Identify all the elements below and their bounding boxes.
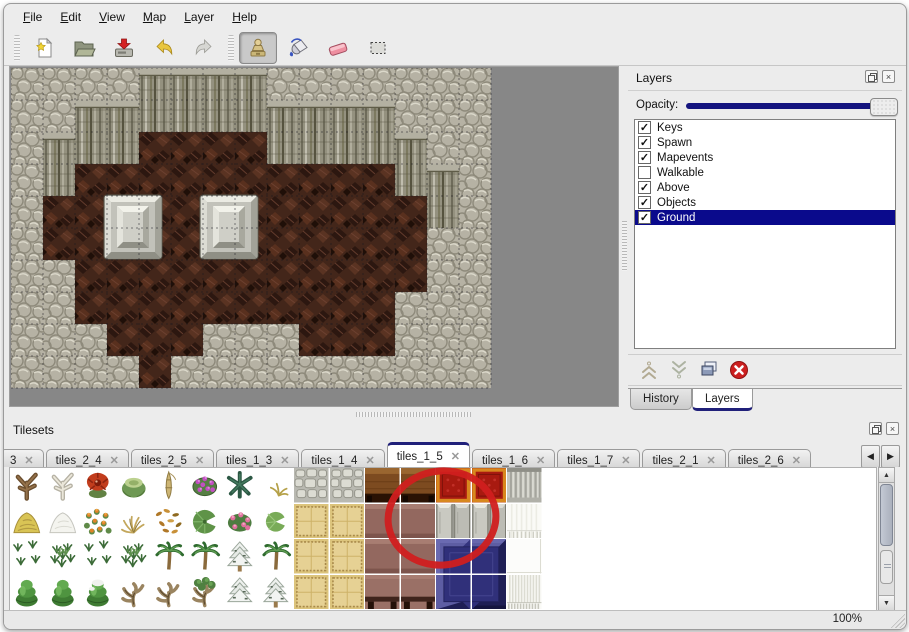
tile-dry-grass[interactable] [117,504,152,539]
scroll-down-button[interactable]: ▼ [879,595,894,610]
tab-close-icon[interactable]: ✕ [195,454,204,467]
tile-table-brown[interactable] [401,575,436,610]
menu-map[interactable]: Map [134,7,175,27]
tileset-tab-label: tiles_2_6 [738,455,784,467]
tile-stump[interactable] [117,468,152,503]
layer-row-ground[interactable]: ✓Ground [635,210,895,225]
tile-blue-bl[interactable] [436,575,471,610]
layer-name: Mapevents [657,152,713,164]
tileset-tab-label: tiles_2_5 [141,455,187,467]
float-icon [872,425,879,432]
tile-conifer[interactable] [10,575,45,610]
tileset-tab-tiles_1_3[interactable]: tiles_1_3✕ [216,449,299,467]
save-icon [112,36,136,60]
delete-layer-button[interactable] [726,357,752,383]
layer-name: Keys [657,122,683,134]
duplicate-layer-button[interactable] [696,357,722,383]
tile-twisted-tree[interactable] [117,575,152,610]
fill-bucket-icon [286,36,310,60]
tile-curtain-white[interactable] [507,504,542,539]
menu-view[interactable]: View [90,7,134,27]
toolbar [4,30,906,66]
tile-tan-carpet[interactable] [330,504,365,539]
tab-close-icon[interactable]: ✕ [792,454,801,467]
new-file-icon [32,36,56,60]
tileset-tab-label: tiles_1_4 [311,455,357,467]
layers-float-button[interactable] [865,70,878,83]
layer-buttons [628,354,902,386]
tab-close-icon[interactable]: ✕ [110,454,119,467]
tileset-tab-tiles_2_6[interactable]: tiles_2_6✕ [728,449,811,467]
tab-close-icon[interactable]: ✕ [365,454,374,467]
menu-layer[interactable]: Layer [175,7,223,27]
tile-cobble[interactable] [294,468,329,503]
layer-name: Objects [657,197,696,209]
raise-layer-button[interactable] [636,357,662,383]
tile-weed-clump[interactable] [46,539,81,574]
tile-bamboo[interactable] [152,468,187,503]
tab-close-icon[interactable]: ✕ [280,454,289,467]
tile-tan-carpet[interactable] [294,575,329,610]
tileset-tab-label: tiles_1_5 [397,451,443,463]
layer-visibility-checkbox[interactable]: ✓ [638,181,651,194]
tileset-tab-tiles_1_5[interactable]: tiles_1_5✕ [387,442,470,467]
menu-edit[interactable]: Edit [51,7,90,27]
layer-row-above[interactable]: ✓Above [635,180,895,195]
float-icon [868,73,875,80]
layer-visibility-checkbox[interactable] [638,166,651,179]
layer-row-mapevents[interactable]: ✓Mapevents [635,150,895,165]
layer-name: Spawn [657,137,692,149]
tile-red-flower[interactable] [81,468,116,503]
stamp-icon [246,36,270,60]
layer-visibility-checkbox[interactable]: ✓ [638,196,651,209]
lower-layer-icon [668,359,690,381]
tile-purple-flowers[interactable] [188,468,223,503]
toolbar-grip[interactable] [228,35,234,61]
tilesets-dock-title: Tilesets [13,423,54,437]
tileset-scrollbar[interactable]: ▲ ▼ [878,467,895,611]
duplicate-layer-icon [698,359,720,381]
tileset-tab-tiles_1_4[interactable]: tiles_1_4✕ [301,449,384,467]
layer-name: Ground [657,212,695,224]
tile-curtain-fringe[interactable] [507,575,542,610]
opacity-slider-handle[interactable] [870,98,898,116]
select-tool-button[interactable] [359,32,397,64]
tile-red-carpet[interactable] [436,468,471,503]
tile-palm[interactable] [188,539,223,574]
tile-mauve[interactable] [365,504,400,539]
delete-layer-icon [728,359,750,381]
tileset-tab-label: tiles_1_7 [567,455,613,467]
tile-tan-carpet[interactable] [330,539,365,574]
tile-lily-pad[interactable] [188,504,223,539]
new-map-button[interactable] [25,32,63,64]
tileset-tab-tiles_2_5[interactable]: tiles_2_5✕ [131,449,214,467]
tile-leaves[interactable] [152,504,187,539]
tileset-tab-label: 3 [10,455,16,467]
layers-dock-title: Layers [636,71,672,85]
tile-weed-clump[interactable] [117,539,152,574]
tilesets-close-button[interactable]: × [886,422,899,435]
scroll-tabs-left-button[interactable]: ◀ [861,445,880,467]
open-folder-icon [72,36,96,60]
dock-tab-layers[interactable]: Layers [692,389,753,411]
vertical-splitter[interactable] [620,66,628,407]
scroll-tabs-right-button[interactable]: ▶ [881,445,900,467]
tilesets-float-button[interactable] [869,422,882,435]
tab-close-icon[interactable]: ✕ [24,454,33,467]
undo-arrow-icon [152,36,176,60]
tile-blue-br[interactable] [472,575,507,610]
tileset-tab-label: tiles_1_3 [226,455,272,467]
layer-row-spawn[interactable]: ✓Spawn [635,135,895,150]
tab-close-icon[interactable]: ✕ [536,454,545,467]
tile-metal-block[interactable] [436,504,471,539]
tileset-tab-tiles_1_7[interactable]: tiles_1_7✕ [557,449,640,467]
scrollbar-grip[interactable] [880,550,893,584]
layer-name: Above [657,182,690,194]
layer-visibility-checkbox[interactable]: ✓ [638,211,651,224]
eraser-tool-button[interactable] [319,32,357,64]
tile-mauve[interactable] [365,539,400,574]
toolbar-grip[interactable] [14,35,20,61]
menu-file[interactable]: File [14,7,51,27]
layer-visibility-checkbox[interactable]: ✓ [638,136,651,149]
menu-bar: FileEditViewMapLayerHelp [4,4,906,30]
tile-blue-tl[interactable] [436,539,471,574]
tileset-tab-3[interactable]: 3✕ [4,449,44,467]
selection-icon [366,36,390,60]
save-button[interactable] [105,32,143,64]
raise-layer-icon [638,359,660,381]
tab-close-icon[interactable]: ✕ [707,454,716,467]
fill-tool-button[interactable] [279,32,317,64]
tile-dark-palm[interactable] [223,468,258,503]
eraser-icon [326,36,350,60]
tile-snow-tree[interactable] [223,539,258,574]
tile-wood-top[interactable] [365,468,400,503]
tab-close-icon[interactable]: ✕ [451,450,460,463]
tile-palm-tall[interactable] [259,539,294,574]
tile-snow-pine[interactable] [223,575,258,610]
zoom-level: 100% [833,613,862,625]
layer-row-walkable[interactable]: Walkable [635,165,895,180]
layer-visibility-checkbox[interactable]: ✓ [638,151,651,164]
tile-twisted-tree[interactable] [152,575,187,610]
layer-name: Walkable [657,167,704,179]
tile-conifer[interactable] [46,575,81,610]
stamp-tool-button[interactable] [239,32,277,64]
tile-blue-tr[interactable] [472,539,507,574]
tileset-palette[interactable] [10,468,542,609]
layer-row-keys[interactable]: ✓Keys [635,120,895,135]
tile-conifer-snow[interactable] [81,575,116,610]
tile-lily-pad2[interactable] [259,504,294,539]
screenshot-root: { "menu_bar": { "items": ["File", "Edit"… [0,0,909,632]
tile-tan-carpet[interactable] [330,575,365,610]
tile-snow-pile[interactable] [46,504,81,539]
layer-list: ✓Keys✓Spawn✓MapeventsWalkable✓Above✓Obje… [634,119,896,349]
tile-weeds[interactable] [81,539,116,574]
app-window: FileEditViewMapLayerHelp Layers × Opacit… [3,3,907,630]
tileset-tab-label: tiles_2_1 [652,455,698,467]
dock-tab-history[interactable]: History [630,389,692,410]
menu-help[interactable]: Help [223,7,266,27]
close-icon: × [886,72,891,82]
tile-snow-pine-tall[interactable] [259,575,294,610]
redo-arrow-icon [192,36,216,60]
tile-palm[interactable] [152,539,187,574]
tile-white-tile[interactable] [507,539,542,574]
layers-dock: Layers × Opacity: ✓Keys✓Spawn✓MapeventsW… [628,66,902,411]
tile-tan-carpet[interactable] [294,504,329,539]
resize-grip-icon[interactable] [890,613,905,628]
tile-twisted-green[interactable] [188,575,223,610]
undo-button[interactable] [145,32,183,64]
tile-dry-plant[interactable] [259,468,294,503]
tile-weeds[interactable] [10,539,45,574]
tileset-tab-label: tiles_2_4 [56,455,102,467]
tilesets-dock: Tilesets × 3✕tiles_2_4✕tiles_2_5✕tiles_1… [4,420,906,611]
tile-cobble[interactable] [330,468,365,503]
layer-visibility-checkbox[interactable]: ✓ [638,121,651,134]
map-tiles[interactable] [11,68,493,390]
tile-coral-tree[interactable] [46,468,81,503]
tileset-palette-area[interactable] [9,467,877,611]
tile-wood-top[interactable] [401,468,436,503]
tile-red-carpet[interactable] [472,468,507,503]
opacity-label: Opacity: [636,99,678,111]
close-icon: × [890,424,895,434]
map-canvas[interactable] [9,66,619,407]
tile-mauve[interactable] [401,539,436,574]
layer-row-objects[interactable]: ✓Objects [635,195,895,210]
lower-layer-button[interactable] [666,357,692,383]
status-bar: 100% [4,610,906,629]
scroll-up-button[interactable]: ▲ [879,468,894,483]
tile-curtain-gray[interactable] [507,468,542,503]
tileset-tab-tiles_2_4[interactable]: tiles_2_4✕ [46,449,129,467]
tileset-tab-label: tiles_1_6 [482,455,528,467]
open-button[interactable] [65,32,103,64]
tileset-tab-tiles_2_1[interactable]: tiles_2_1✕ [642,449,725,467]
tile-metal-block[interactable] [472,504,507,539]
tile-tan-carpet[interactable] [294,539,329,574]
tileset-tab-bar: 3✕tiles_2_4✕tiles_2_5✕tiles_1_3✕tiles_1_… [4,441,906,467]
tile-table-brown[interactable] [365,575,400,610]
tab-close-icon[interactable]: ✕ [621,454,630,467]
stone-block[interactable] [104,195,162,259]
tileset-tab-tiles_1_6[interactable]: tiles_1_6✕ [472,449,555,467]
opacity-slider-track [686,103,898,109]
tile-hay[interactable] [10,504,45,539]
tile-dead-tree[interactable] [10,468,45,503]
tile-mauve[interactable] [401,504,436,539]
opacity-slider[interactable] [686,96,898,116]
tile-orange-flowers[interactable] [81,504,116,539]
dock-bottom-tabs: HistoryLayers [628,388,902,412]
layers-close-button[interactable]: × [882,70,895,83]
tile-rose-bush[interactable] [223,504,258,539]
redo-button[interactable] [185,32,223,64]
scrollbar-thumb[interactable] [880,484,893,546]
stone-block[interactable] [200,195,258,259]
